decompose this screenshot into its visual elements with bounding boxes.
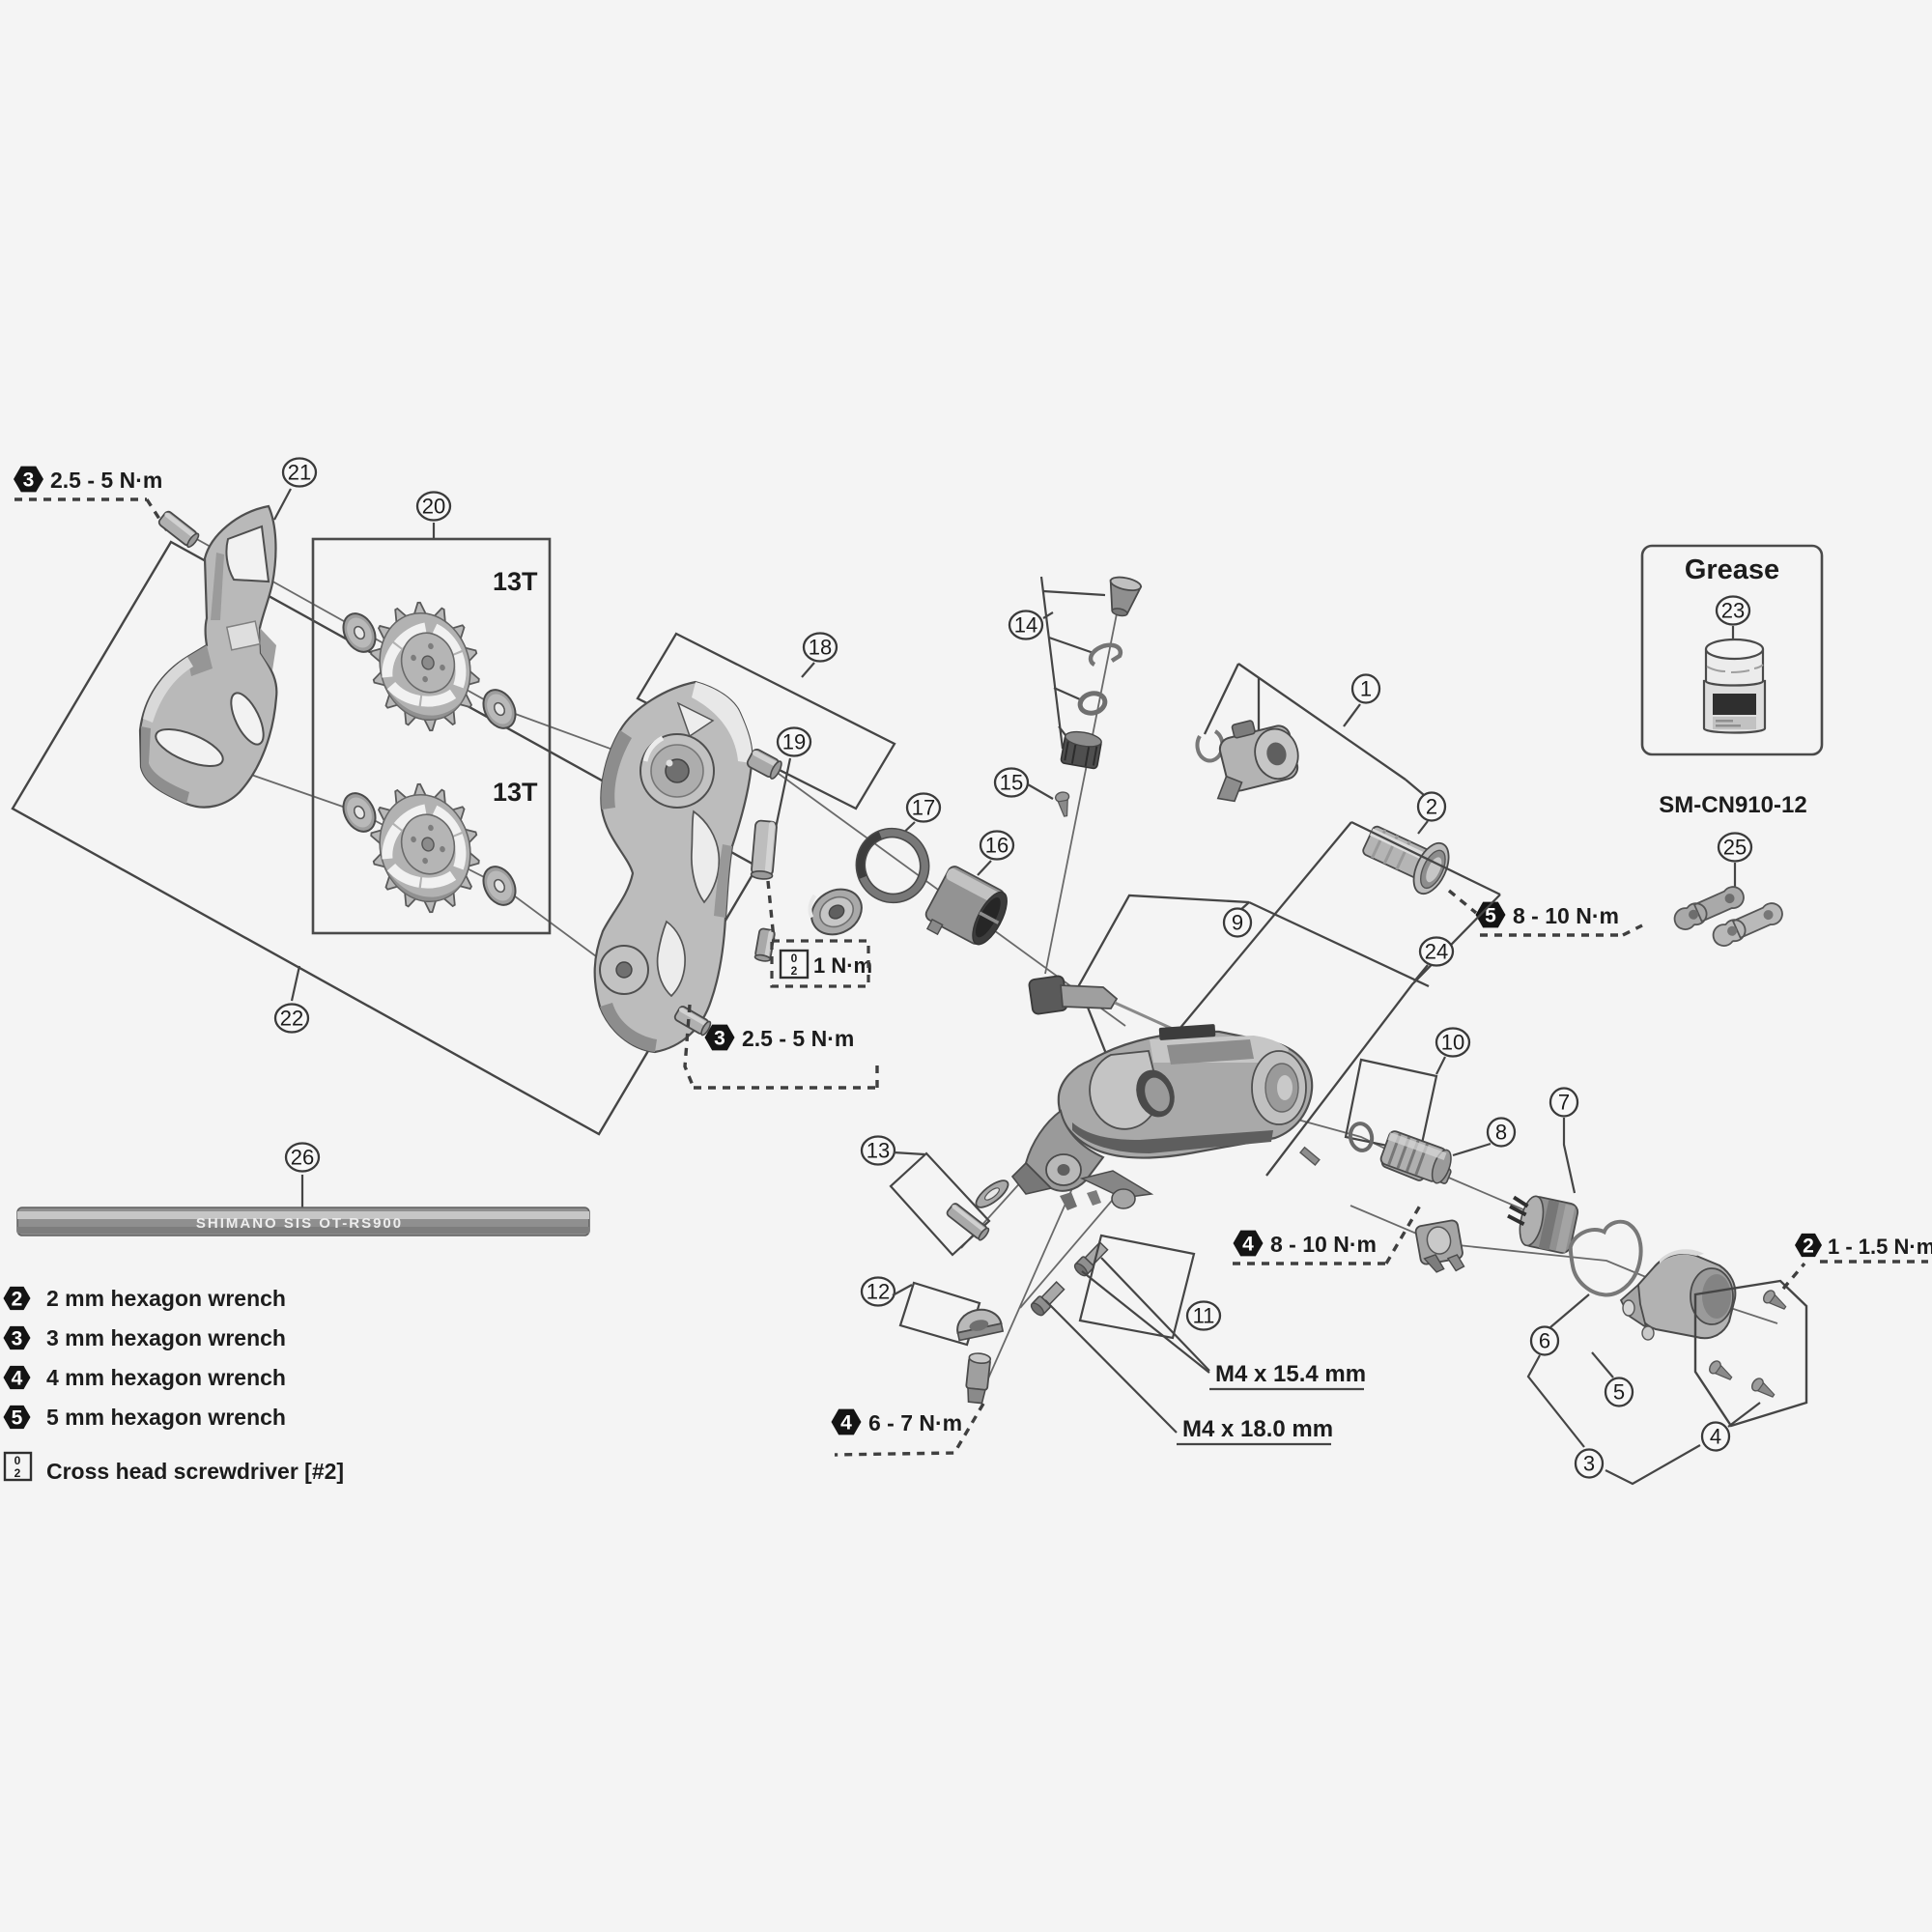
svg-text:4: 4 xyxy=(1710,1425,1721,1449)
svg-text:12: 12 xyxy=(867,1280,890,1304)
svg-text:6 - 7 N·m: 6 - 7 N·m xyxy=(868,1410,962,1435)
svg-text:Grease: Grease xyxy=(1685,554,1779,585)
svg-text:1 - 1.5 N·m: 1 - 1.5 N·m xyxy=(1828,1235,1932,1259)
svg-text:13: 13 xyxy=(867,1139,890,1163)
svg-text:24: 24 xyxy=(1425,940,1448,964)
svg-text:4: 4 xyxy=(12,1368,23,1390)
svg-text:5 mm hexagon wrench: 5 mm hexagon wrench xyxy=(46,1405,286,1430)
svg-text:2: 2 xyxy=(1803,1236,1814,1258)
svg-text:3: 3 xyxy=(12,1328,23,1350)
svg-text:7: 7 xyxy=(1558,1091,1570,1115)
svg-text:2: 2 xyxy=(791,964,798,978)
svg-text:3: 3 xyxy=(1583,1452,1595,1476)
svg-text:2: 2 xyxy=(14,1466,21,1480)
svg-text:3: 3 xyxy=(23,469,35,492)
svg-text:4 mm hexagon wrench: 4 mm hexagon wrench xyxy=(46,1365,286,1390)
svg-text:15: 15 xyxy=(1000,771,1023,795)
svg-text:11: 11 xyxy=(1193,1304,1215,1328)
svg-text:20: 20 xyxy=(422,495,445,519)
svg-text:6: 6 xyxy=(1539,1329,1550,1353)
svg-text:M4 x 18.0 mm: M4 x 18.0 mm xyxy=(1182,1416,1333,1442)
svg-text:1: 1 xyxy=(1360,677,1372,701)
svg-text:5: 5 xyxy=(12,1407,23,1430)
svg-text:13T: 13T xyxy=(493,567,538,596)
svg-text:SM-CN910-12: SM-CN910-12 xyxy=(1659,792,1806,818)
svg-text:25: 25 xyxy=(1723,836,1747,860)
svg-text:2 mm hexagon wrench: 2 mm hexagon wrench xyxy=(46,1286,286,1311)
svg-text:SHIMANO SIS OT-RS900: SHIMANO SIS OT-RS900 xyxy=(196,1215,403,1232)
svg-text:1 N·m: 1 N·m xyxy=(813,953,872,978)
svg-text:19: 19 xyxy=(782,730,806,754)
svg-text:2.5 - 5 N·m: 2.5 - 5 N·m xyxy=(742,1026,854,1051)
svg-text:16: 16 xyxy=(985,834,1009,858)
svg-text:13T: 13T xyxy=(493,778,538,807)
svg-text:14: 14 xyxy=(1014,613,1037,638)
svg-text:10: 10 xyxy=(1441,1031,1464,1055)
svg-text:4: 4 xyxy=(1242,1234,1254,1256)
svg-text:2.5 - 5 N·m: 2.5 - 5 N·m xyxy=(50,468,162,493)
svg-text:2: 2 xyxy=(1426,795,1437,819)
svg-text:8: 8 xyxy=(1495,1121,1507,1145)
svg-text:0: 0 xyxy=(791,952,798,965)
svg-text:Cross head screwdriver [#2]: Cross head screwdriver [#2] xyxy=(46,1459,344,1484)
svg-text:26: 26 xyxy=(291,1146,314,1170)
svg-text:4: 4 xyxy=(840,1412,852,1435)
svg-text:21: 21 xyxy=(288,461,311,485)
svg-text:9: 9 xyxy=(1232,911,1243,935)
svg-text:M4 x 15.4 mm: M4 x 15.4 mm xyxy=(1215,1361,1366,1387)
svg-text:22: 22 xyxy=(280,1007,303,1031)
svg-text:17: 17 xyxy=(912,796,935,820)
svg-text:8 - 10 N·m: 8 - 10 N·m xyxy=(1513,903,1619,928)
svg-text:8 - 10 N·m: 8 - 10 N·m xyxy=(1270,1232,1377,1257)
svg-text:3: 3 xyxy=(714,1028,725,1050)
svg-text:0: 0 xyxy=(14,1454,21,1467)
svg-text:5: 5 xyxy=(1613,1380,1625,1405)
svg-text:2: 2 xyxy=(12,1289,23,1311)
svg-text:3 mm hexagon wrench: 3 mm hexagon wrench xyxy=(46,1325,286,1350)
svg-text:18: 18 xyxy=(809,636,832,660)
svg-text:23: 23 xyxy=(1721,599,1745,623)
